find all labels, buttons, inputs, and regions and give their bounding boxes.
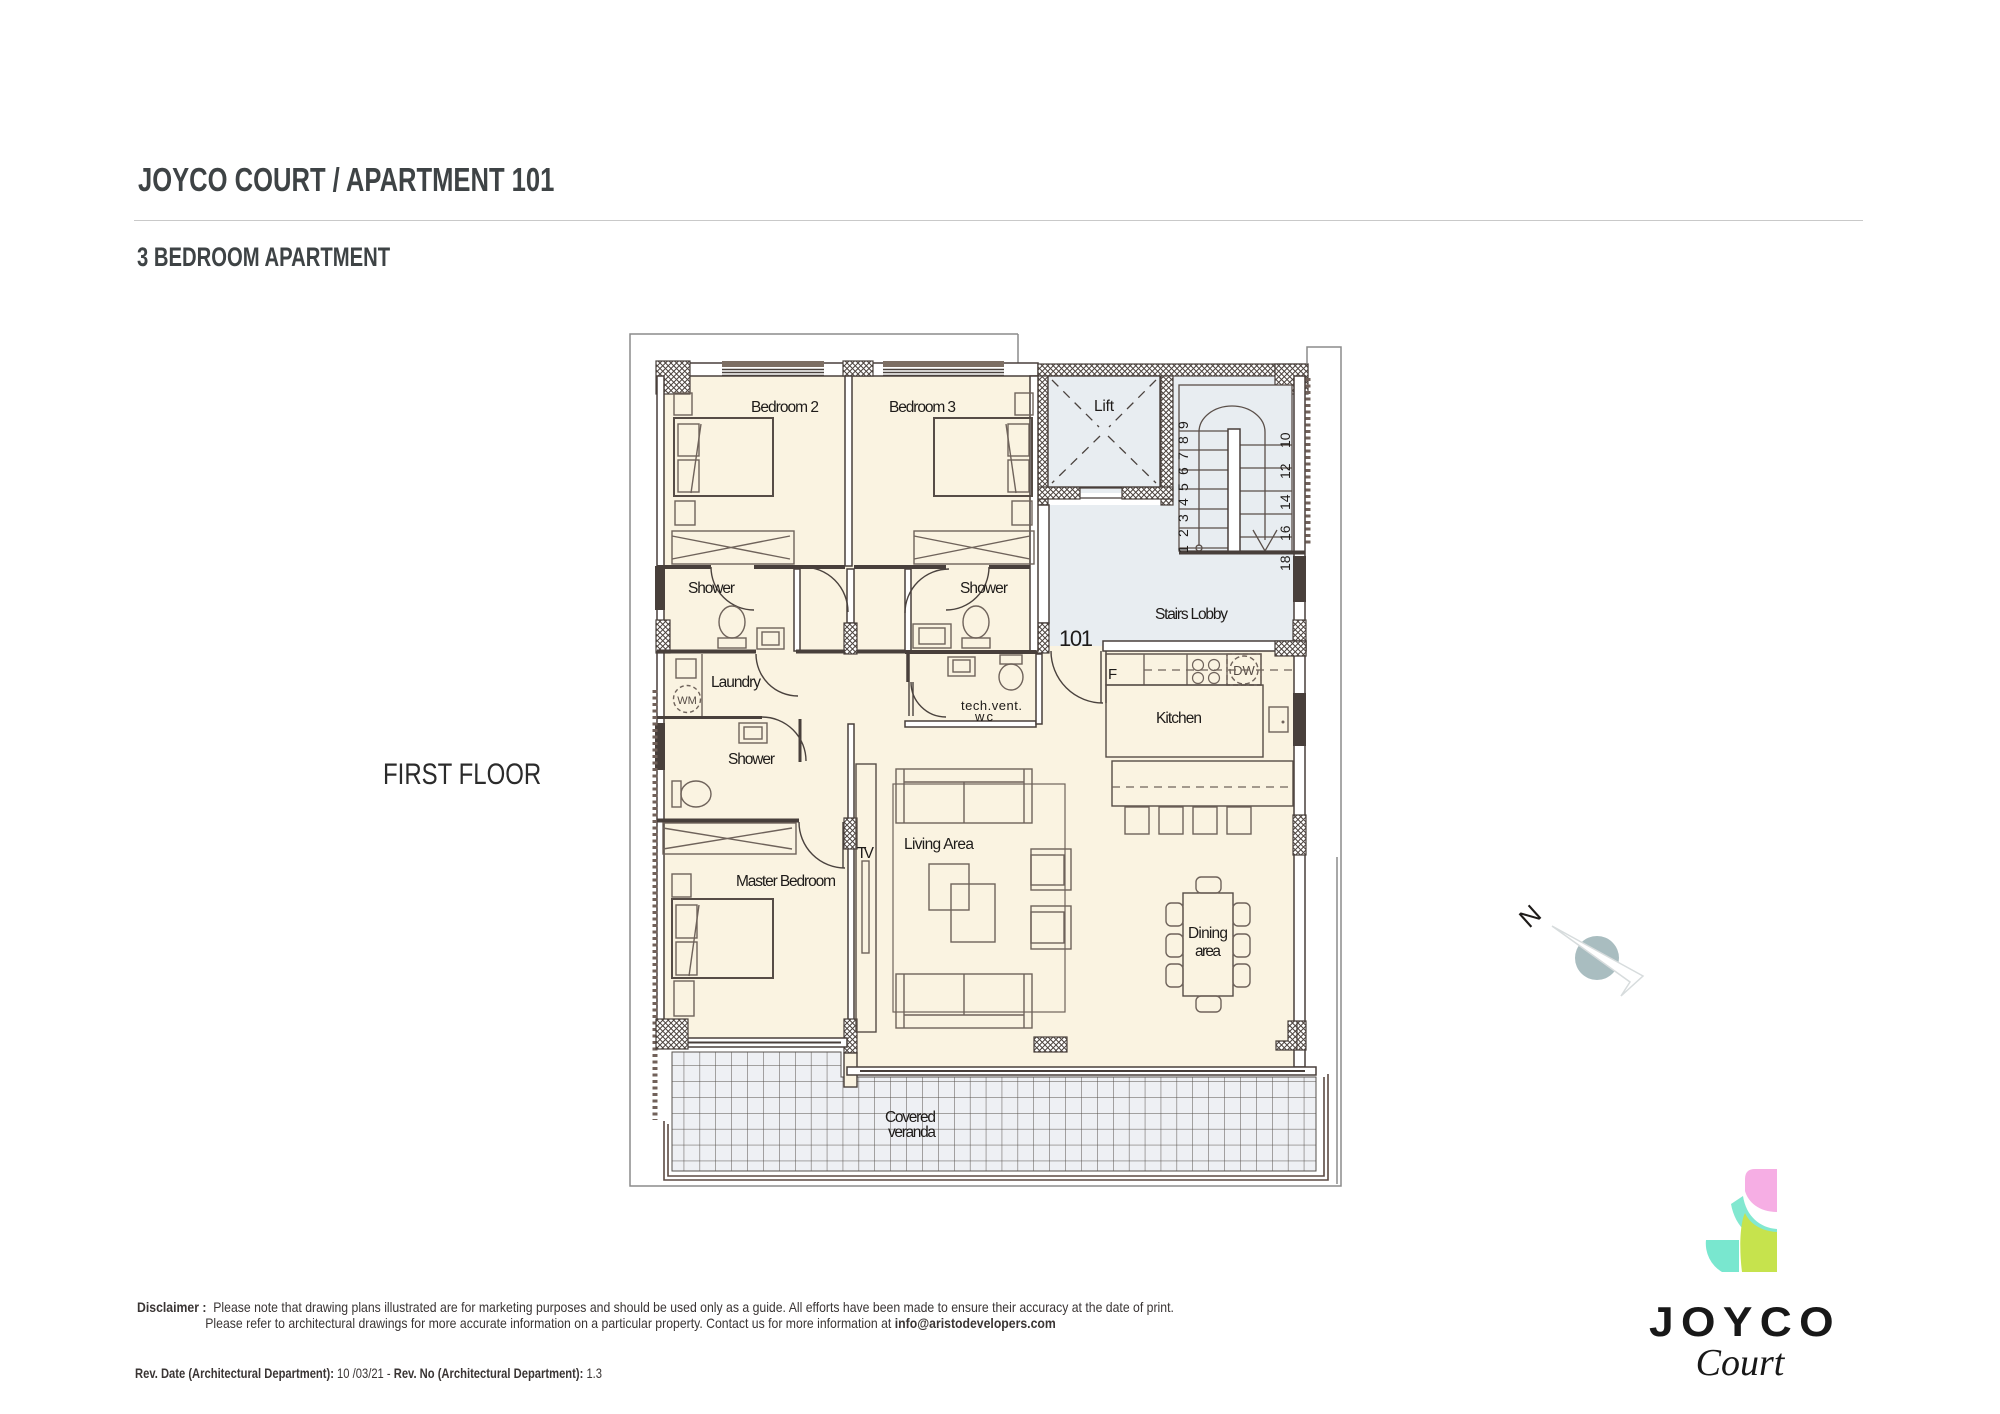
svg-text:Bedroom 3: Bedroom 3 (889, 399, 956, 416)
svg-text:10: 10 (1277, 432, 1293, 448)
svg-text:1: 1 (1175, 545, 1191, 553)
svg-text:Shower: Shower (960, 580, 1008, 597)
svg-text:18: 18 (1277, 555, 1293, 571)
svg-text:veranda: veranda (888, 1124, 936, 1141)
svg-text:9: 9 (1175, 421, 1191, 429)
svg-text:Master Bedroom: Master Bedroom (736, 873, 836, 890)
svg-text:F: F (1108, 666, 1117, 683)
svg-text:2: 2 (1175, 529, 1191, 537)
svg-text:WM: WM (677, 695, 697, 707)
svg-text:14: 14 (1277, 494, 1293, 510)
svg-text:8: 8 (1175, 436, 1191, 444)
svg-text:Laundry: Laundry (711, 674, 761, 691)
svg-text:TV: TV (857, 845, 875, 862)
svg-text:Kitchen: Kitchen (1156, 710, 1202, 727)
svg-text:Shower: Shower (728, 751, 775, 768)
svg-text:Living Area: Living Area (904, 836, 974, 853)
svg-text:Dining: Dining (1188, 925, 1228, 942)
svg-text:6: 6 (1175, 467, 1191, 475)
svg-text:4: 4 (1175, 498, 1191, 506)
svg-text:Lift: Lift (1094, 398, 1115, 415)
svg-text:N: N (1513, 899, 1547, 934)
svg-text:5: 5 (1175, 483, 1191, 491)
svg-text:JOYCO: JOYCO (1649, 1298, 1841, 1345)
svg-text:7: 7 (1175, 452, 1191, 460)
svg-text:16: 16 (1277, 525, 1293, 541)
svg-text:Shower: Shower (688, 580, 735, 597)
svg-text:3: 3 (1175, 514, 1191, 522)
svg-text:Stairs Lobby: Stairs Lobby (1155, 606, 1228, 623)
svg-text:wc: wc (974, 709, 994, 724)
svg-text:Court: Court (1696, 1342, 1786, 1384)
svg-text:101: 101 (1059, 626, 1093, 651)
svg-text:area: area (1195, 943, 1221, 960)
svg-text:12: 12 (1277, 463, 1293, 479)
svg-text:Bedroom 2: Bedroom 2 (751, 399, 819, 416)
